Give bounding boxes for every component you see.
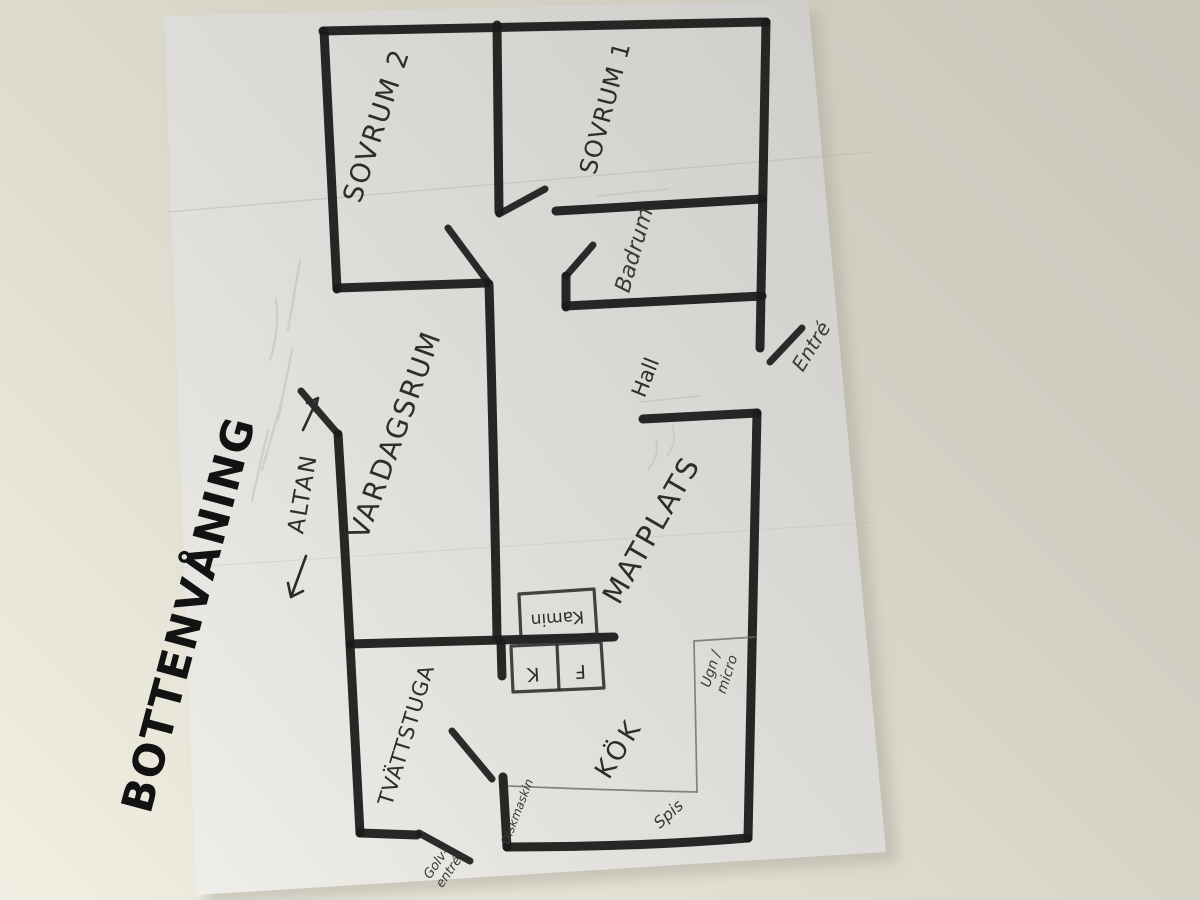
wall-kitchen-left-stub (501, 642, 502, 676)
wall-sovrum-divider (497, 25, 499, 212)
wall-sovrum2-bottom (337, 283, 487, 288)
label-frys: F (574, 660, 586, 683)
kyl-frys-divider (557, 644, 559, 690)
floor-plan-photo: BOTTENVÅNING SOVRUM 2 SOVRUM 1 Badrum VA… (0, 0, 1200, 900)
wall-hall (643, 413, 757, 419)
wall-tvattstuga-bottom (360, 833, 417, 835)
paper-sheet (164, 0, 886, 895)
label-kamin: Kamin (530, 606, 585, 630)
label-kyl: K (526, 663, 540, 686)
